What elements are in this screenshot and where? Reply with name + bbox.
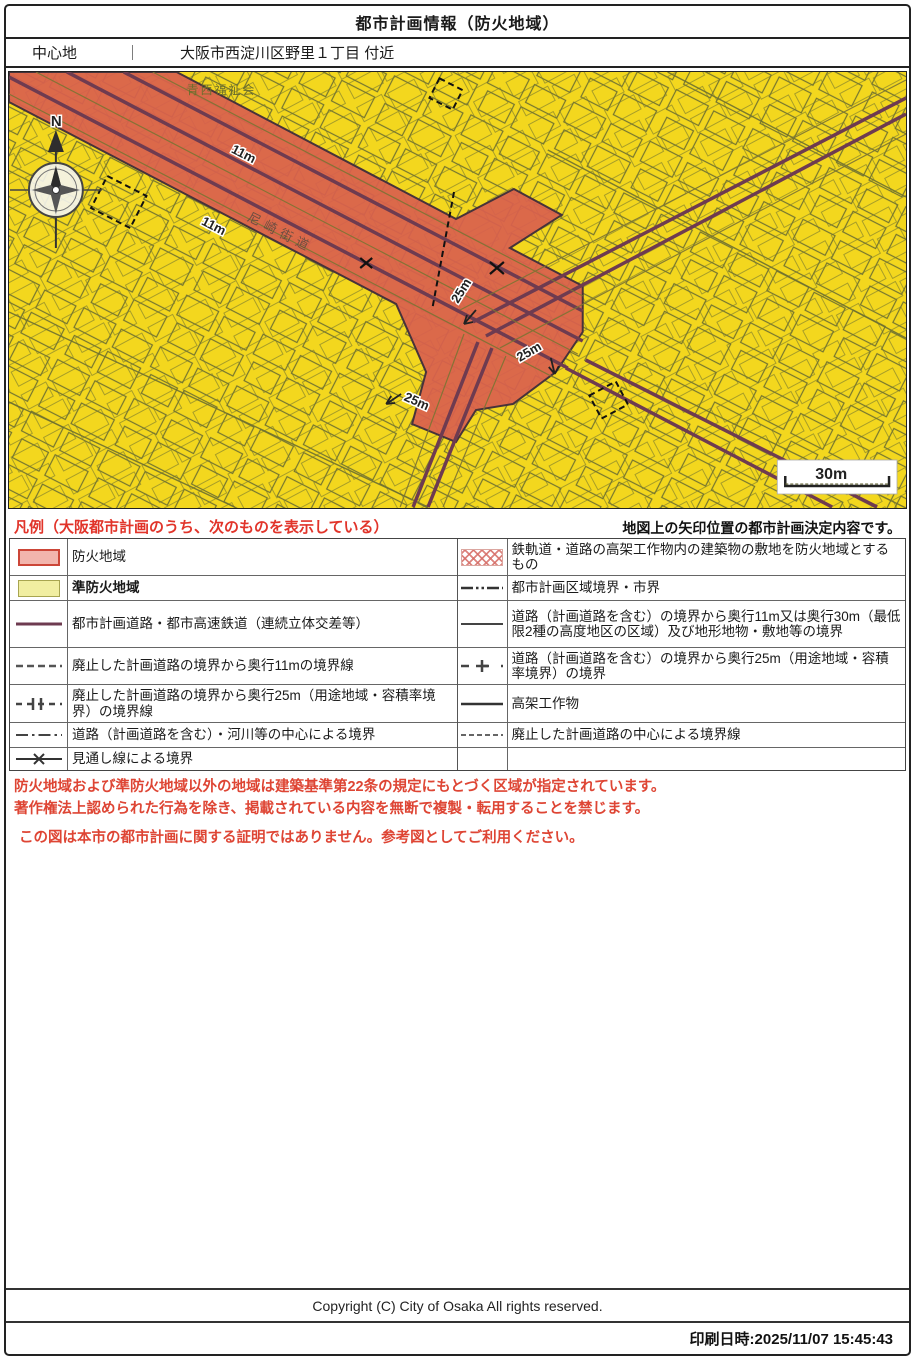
legend-label: 廃止した計画道路の境界から奥行11mの境界線 [68, 648, 457, 684]
scale-bar: 30m [777, 460, 897, 494]
legend-row: 防火地域 [10, 539, 457, 576]
legend-row: 準防火地域 [10, 576, 457, 601]
elevated-structure-fire-swatch [461, 549, 503, 566]
map-canvas: N 青西福祉会 11m 11m 尼崎街道 25m 25m 25m 30m [9, 72, 906, 508]
disclaimer-notes: 防火地域および準防火地域以外の地域は建築基準第22条の規定にもとづく区域が指定さ… [6, 771, 909, 849]
note-line: 防火地域および準防火地域以外の地域は建築基準第22条の規定にもとづく区域が指定さ… [14, 776, 909, 798]
facility-label: 青西福祉会 [187, 82, 257, 97]
city-boundary-line-symbol [460, 581, 504, 595]
legend-row: 見通し線による境界 [10, 748, 457, 770]
city-plan-map: N 青西福祉会 11m 11m 尼崎街道 25m 25m 25m 30m [8, 71, 907, 509]
legend-label: 防火地域 [68, 539, 457, 575]
legend-label [508, 748, 906, 770]
legend-label: 都市計画区域境界・市界 [508, 576, 906, 600]
elevated-structure-line-symbol [460, 697, 504, 711]
abolished-road-center-line-symbol [460, 728, 504, 742]
legend-label: 高架工作物 [508, 685, 906, 722]
copyright-text: Copyright (C) City of Osaka All rights r… [312, 1298, 602, 1314]
scale-label: 30m [815, 466, 847, 483]
legend-label: 都市計画道路・都市高速鉄道（連続立体交差等） [68, 601, 457, 647]
copyright-bar: Copyright (C) City of Osaka All rights r… [6, 1288, 909, 1321]
abolished-road-11m-line-symbol [15, 659, 63, 673]
compass-north-label: N [51, 113, 62, 130]
sight-line-symbol [15, 752, 63, 766]
note-line: この図は本市の都市計画に関する証明ではありません。参考図としてご利用ください。 [14, 827, 909, 849]
location-value: 大阪市西淀川区野里１丁目 付近 [180, 42, 394, 63]
road-offset-11m-30m-line-symbol [460, 617, 504, 631]
location-label: 中心地 [32, 42, 77, 63]
page-frame: 都市計画情報（防火地域） 中心地 ｜ 大阪市西淀川区野里１丁目 付近 [4, 4, 911, 1356]
legend-label: 道路（計画道路を含む）の境界から奥行25m（用途地域・容積率境界）の境界 [508, 648, 906, 684]
legend-row: 都市計画道路・都市高速鉄道（連続立体交差等） [10, 601, 457, 648]
note-line: 著作権法上認められた行為を除き、掲載されている内容を無断で複製・転用することを禁… [14, 798, 909, 820]
legend-row: 廃止した計画道路の境界から奥行25m（用途地域・容積率境界）の境界線 [10, 685, 457, 723]
legend-label: 準防火地域 [68, 576, 457, 600]
legend-row: 道路（計画道路を含む）の境界から奥行25m（用途地域・容積率境界）の境界 [458, 648, 906, 685]
planned-road-line-symbol [15, 617, 63, 631]
location-bar: 中心地 ｜ 大阪市西淀川区野里１丁目 付近 [6, 39, 909, 68]
legend-row: 道路（計画道路を含む）の境界から奥行11m又は奥行30m（最低限2種の高度地区の… [458, 601, 906, 648]
legend-label: 道路（計画道路を含む）・河川等の中心による境界 [68, 723, 457, 747]
road-river-center-line-symbol [15, 728, 63, 742]
legend-label: 廃止した計画道路の中心による境界線 [508, 723, 906, 747]
legend-row-empty [458, 748, 906, 770]
legend-label: 鉄軌道・道路の高架工作物内の建築物の敷地を防火地域とするもの [508, 539, 906, 575]
abolished-road-25m-line-symbol [15, 696, 63, 712]
page: 都市計画情報（防火地域） 中心地 ｜ 大阪市西淀川区野里１丁目 付近 [0, 0, 915, 1360]
semi-fire-district-swatch [18, 580, 60, 597]
page-title: 都市計画情報（防火地域） [355, 10, 559, 34]
road-offset-25m-line-symbol [460, 658, 504, 674]
title-bar: 都市計画情報（防火地域） [6, 6, 909, 39]
legend-right-column: 鉄軌道・道路の高架工作物内の建築物の敷地を防火地域とするもの 都市計画区域境界・… [458, 539, 906, 770]
legend-header: 凡例（大阪都市計画のうち、次のものを表示している） 地図上の矢印位置の都市計画決… [6, 511, 909, 538]
legend-label: 廃止した計画道路の境界から奥行25m（用途地域・容積率境界）の境界線 [68, 685, 457, 722]
legend-row: 廃止した計画道路の境界から奥行11mの境界線 [10, 648, 457, 685]
fire-district-swatch [18, 549, 60, 566]
legend-title: 凡例（大阪都市計画のうち、次のものを表示している） [14, 516, 389, 537]
legend-label: 道路（計画道路を含む）の境界から奥行11m又は奥行30m（最低限2種の高度地区の… [508, 601, 906, 647]
legend-row: 鉄軌道・道路の高架工作物内の建築物の敷地を防火地域とするもの [458, 539, 906, 576]
legend-left-column: 防火地域 準防火地域 都市計画道路・都市高速鉄道（連続立体交差等） 廃 [10, 539, 458, 770]
print-datetime: 印刷日時:2025/11/07 15:45:43 [690, 1328, 893, 1349]
legend-label: 見通し線による境界 [68, 748, 457, 770]
legend-subtitle-right: 地図上の矢印位置の都市計画決定内容です。 [622, 518, 901, 538]
blank-area [6, 849, 909, 1288]
legend-row: 都市計画区域境界・市界 [458, 576, 906, 601]
legend-row: 道路（計画道路を含む）・河川等の中心による境界 [10, 723, 457, 748]
legend-row: 廃止した計画道路の中心による境界線 [458, 723, 906, 748]
legend-row: 高架工作物 [458, 685, 906, 723]
print-info-bar: 印刷日時:2025/11/07 15:45:43 [6, 1321, 909, 1354]
location-separator: ｜ [125, 42, 140, 63]
legend-table: 防火地域 準防火地域 都市計画道路・都市高速鉄道（連続立体交差等） 廃 [9, 538, 906, 771]
